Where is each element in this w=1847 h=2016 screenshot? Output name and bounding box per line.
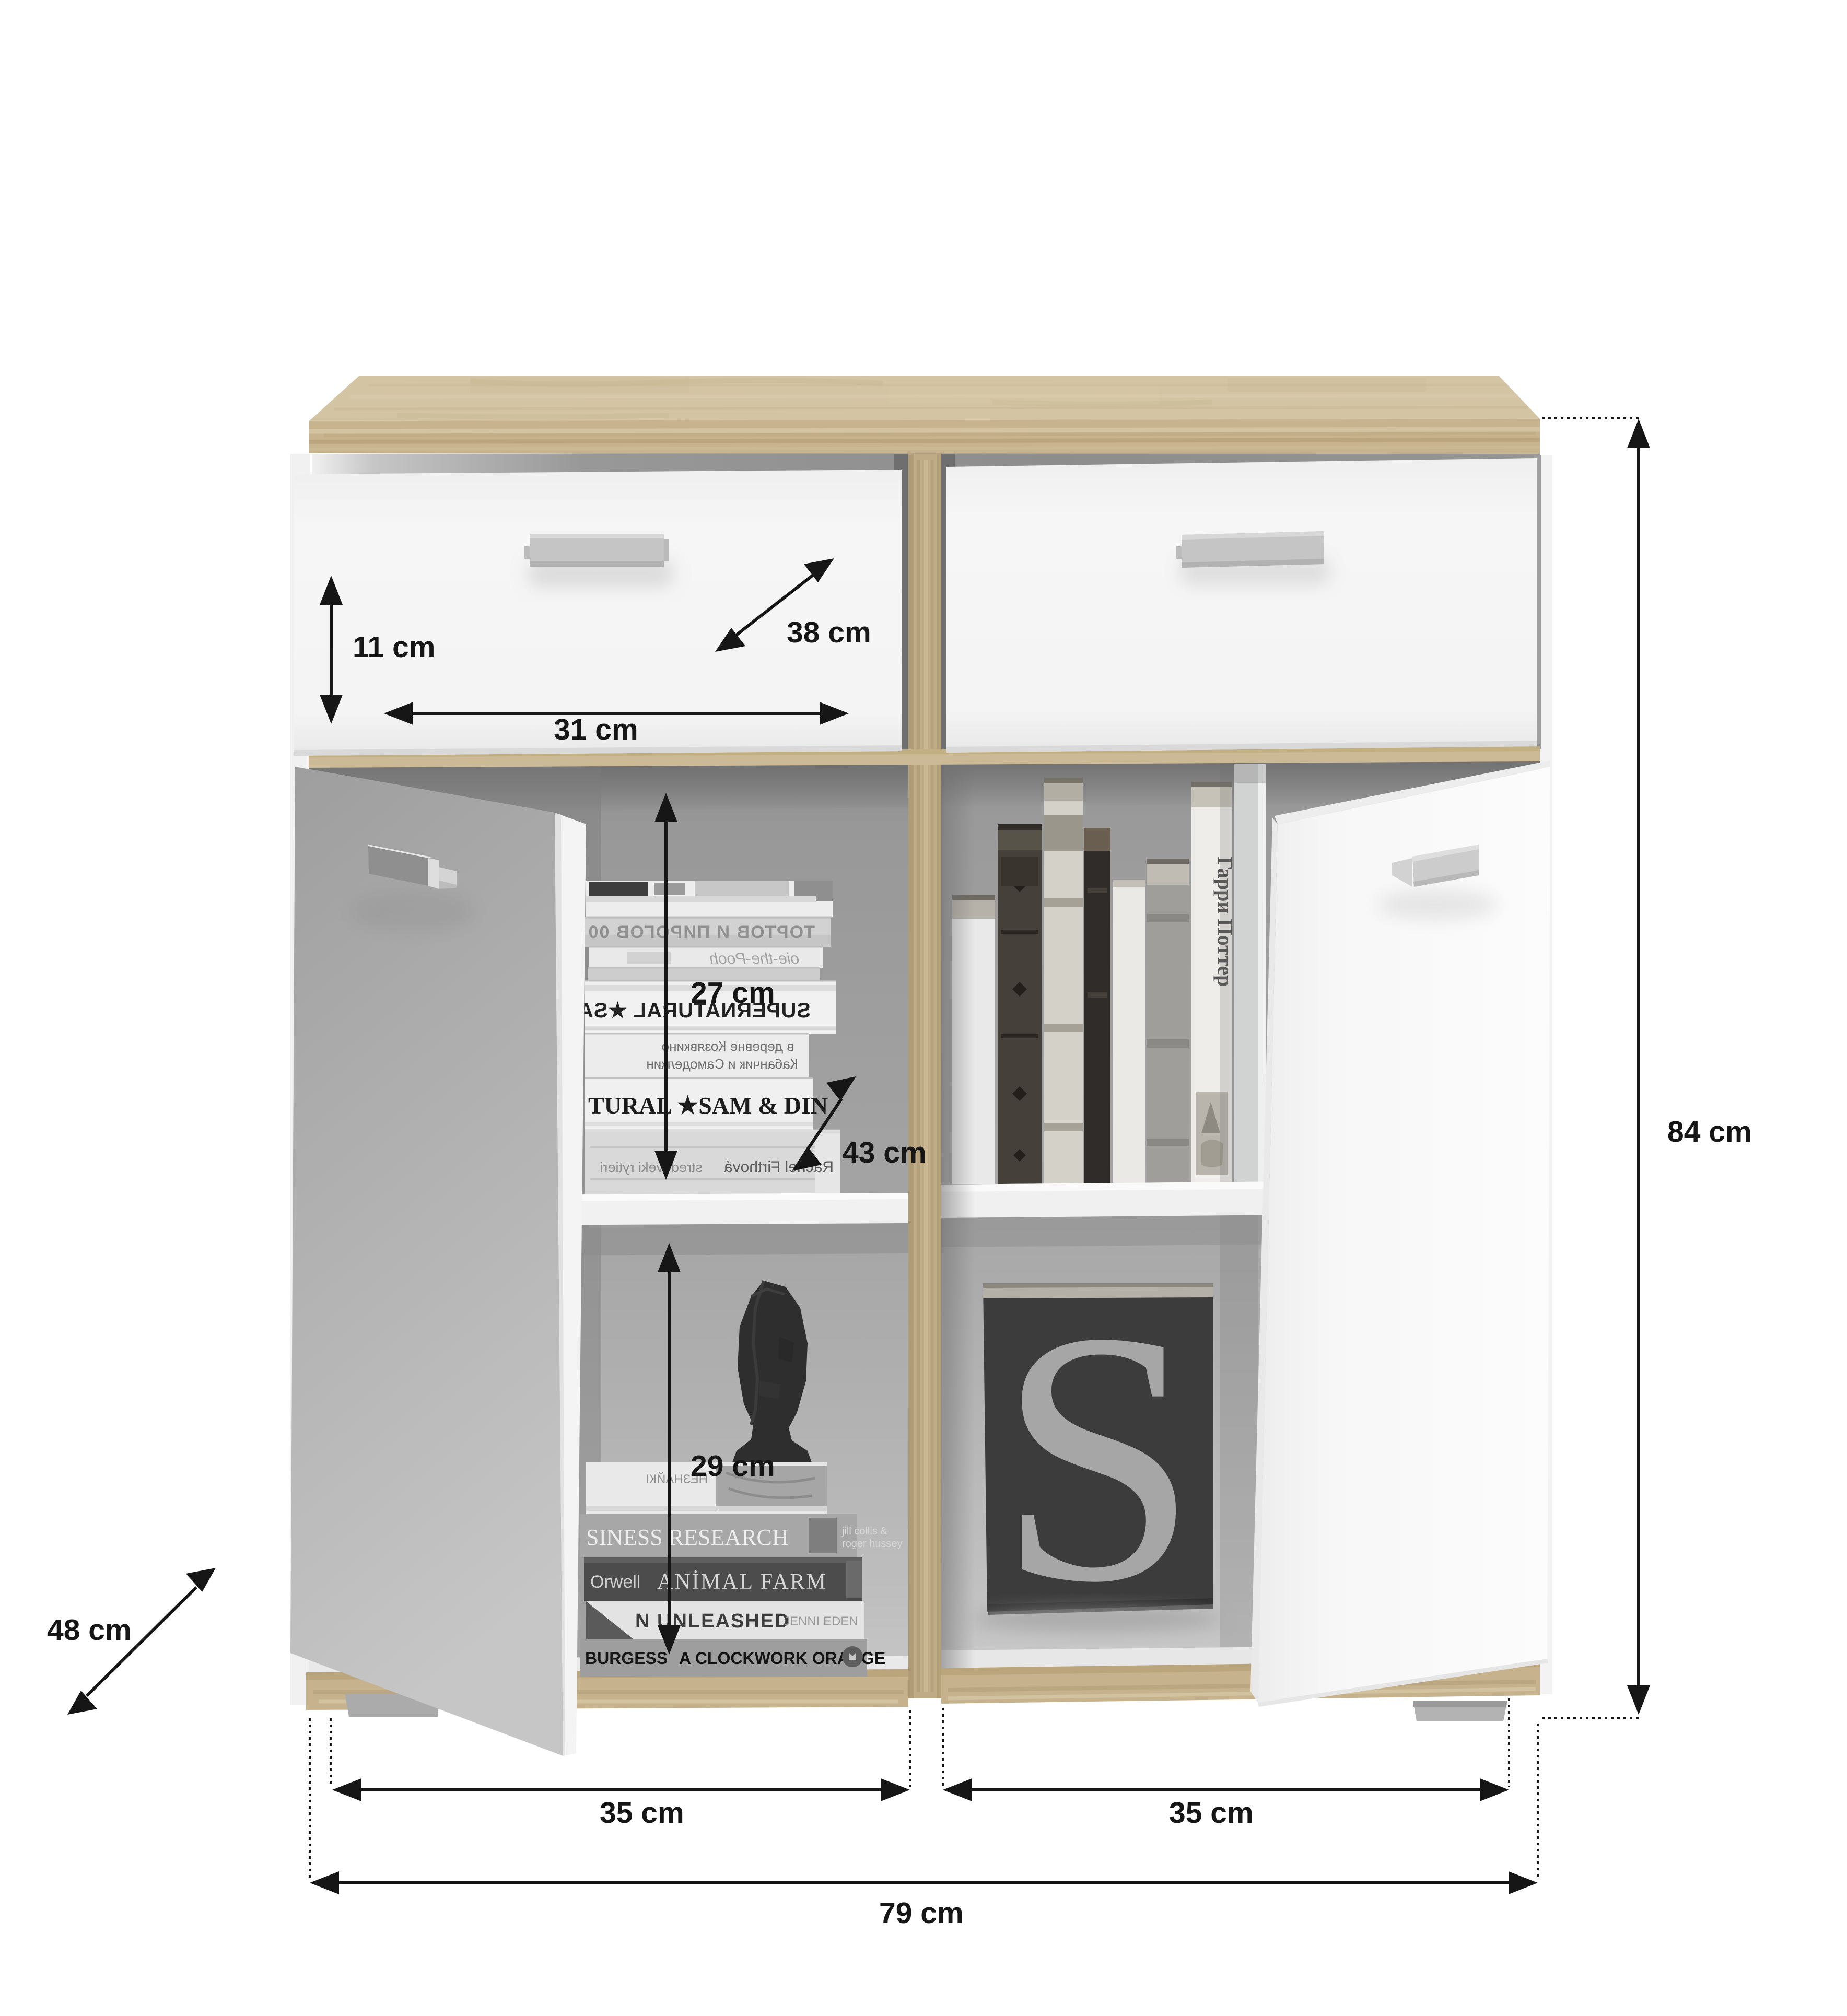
svg-text:stredoveki rytieri: stredoveki rytieri: [600, 1159, 703, 1175]
svg-text:Orwell: Orwell: [590, 1572, 640, 1592]
svg-text:roger hussey: roger hussey: [842, 1538, 903, 1550]
svg-text:43 cm: 43 cm: [842, 1136, 927, 1169]
svg-text:oie-the-Pooh: oie-the-Pooh: [709, 950, 799, 967]
svg-text:ANİMAL FARM: ANİMAL FARM: [657, 1570, 827, 1594]
svg-text:в деревне Козявкино: в деревне Козявкино: [662, 1038, 794, 1054]
svg-text:29 cm: 29 cm: [691, 1449, 775, 1483]
svg-text:38 cm: 38 cm: [787, 616, 871, 649]
svg-text:jill collis &: jill collis &: [841, 1526, 887, 1537]
svg-text:BURGESS: BURGESS: [585, 1649, 668, 1668]
svg-text:35 cm: 35 cm: [1169, 1796, 1254, 1830]
svg-text:79 cm: 79 cm: [879, 1896, 964, 1930]
svg-text:11 cm: 11 cm: [353, 630, 435, 664]
svg-text:SINESS RESEARCH: SINESS RESEARCH: [586, 1525, 789, 1550]
svg-text:ТОРТОВ И ПИРОГОВ 00: ТОРТОВ И ПИРОГОВ 00: [588, 922, 815, 942]
svg-text:S: S: [998, 1258, 1198, 1657]
svg-text:31 cm: 31 cm: [554, 713, 638, 746]
svg-text:27 cm: 27 cm: [691, 976, 775, 1010]
svg-text:Кабанчик и Самоделкин: Кабанчик и Самоделкин: [646, 1056, 798, 1072]
svg-text:84 cm: 84 cm: [1667, 1115, 1752, 1148]
svg-text:35 cm: 35 cm: [600, 1796, 684, 1830]
svg-text:TURAL ★SAM & DIN: TURAL ★SAM & DIN: [588, 1092, 828, 1119]
svg-text:48 cm: 48 cm: [47, 1613, 132, 1647]
svg-text:JENNI EDEN: JENNI EDEN: [784, 1614, 858, 1628]
svg-text:N UNLEASHED: N UNLEASHED: [635, 1610, 790, 1632]
